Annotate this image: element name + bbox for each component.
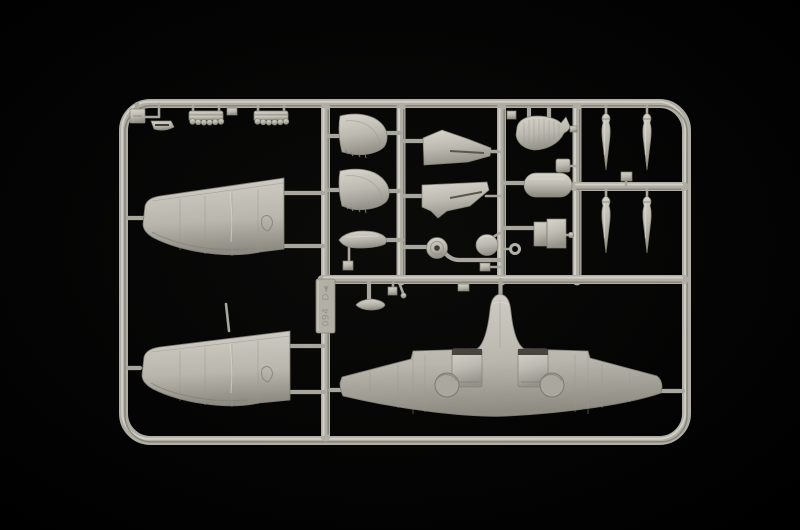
spinner-part	[476, 235, 498, 256]
radiator-opening-right	[518, 349, 548, 355]
sprue-photo: D◄ 094	[0, 0, 800, 530]
wheel-well-left	[435, 373, 459, 397]
tag-letter-text: D◄	[322, 286, 332, 301]
small-block	[343, 261, 353, 270]
tag-number-text: 094	[322, 308, 332, 327]
exhaust-stack-1	[189, 111, 224, 125]
runner-v3	[500, 107, 505, 281]
radiator-opening-left	[452, 349, 482, 355]
runner-bomb-rack	[574, 185, 684, 190]
wheel-part	[427, 238, 448, 259]
knob-pin	[568, 232, 574, 238]
runner-v4	[575, 107, 580, 281]
photo-canvas: D◄ 094	[0, 0, 800, 530]
tank-bracket	[556, 159, 570, 172]
intake-scoop-part	[151, 121, 174, 130]
wheel-well-right	[540, 373, 564, 397]
mold-tag: D◄ 094	[316, 279, 335, 333]
runner-mid	[322, 278, 684, 283]
exhaust-stack-2	[254, 111, 289, 125]
runner-v1	[324, 107, 329, 437]
